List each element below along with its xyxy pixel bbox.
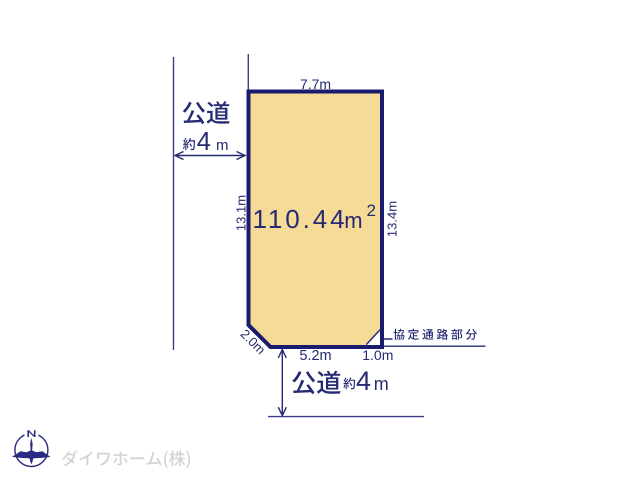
- svg-text:m: m: [344, 208, 362, 233]
- svg-text:13.4m: 13.4m: [384, 201, 399, 237]
- svg-text:m: m: [374, 374, 389, 394]
- svg-text:1.0m: 1.0m: [362, 347, 393, 363]
- svg-text:m: m: [216, 137, 229, 154]
- svg-text:110.44: 110.44: [253, 204, 348, 234]
- svg-text:4: 4: [197, 128, 211, 156]
- svg-text:4: 4: [356, 366, 371, 396]
- svg-text:13.1m: 13.1m: [233, 195, 248, 231]
- svg-text:5.2m: 5.2m: [299, 348, 331, 364]
- svg-text:2: 2: [367, 201, 376, 220]
- svg-text:7.7m: 7.7m: [300, 76, 331, 92]
